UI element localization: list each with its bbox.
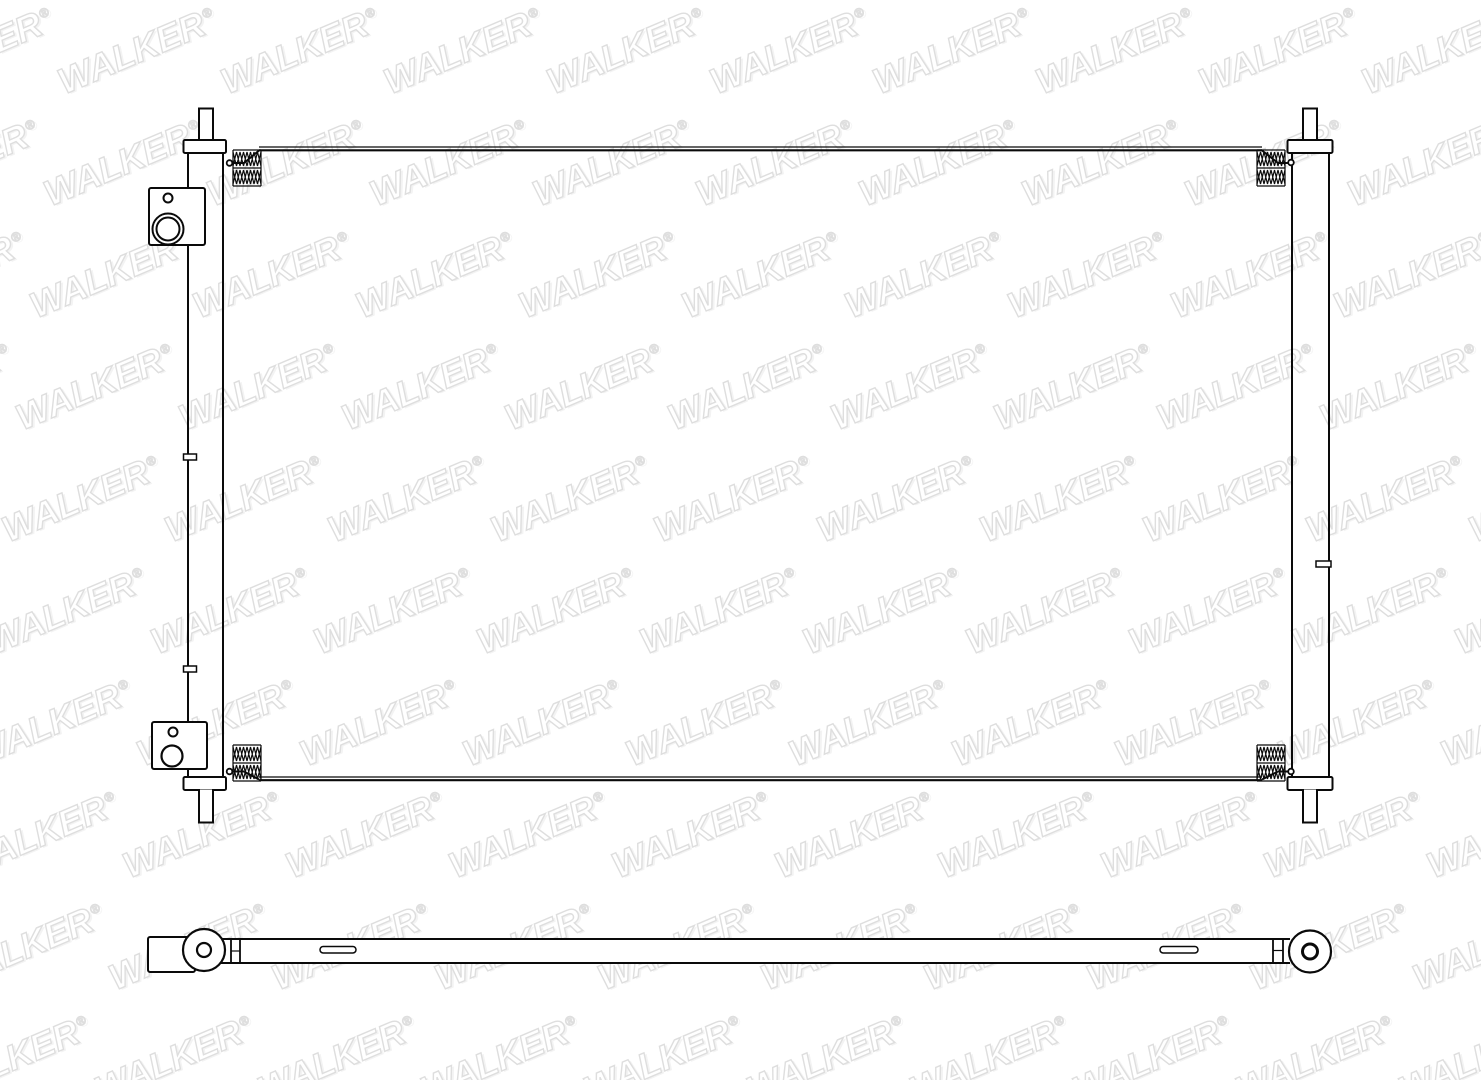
bottom-bar-slot-left [320,947,356,954]
core-bottom-right-hook [1288,769,1294,775]
right-tank-body [1292,153,1329,777]
fin-detail-top-right [1257,150,1285,186]
pin-flange-bottom-right [1288,777,1333,790]
front-view [149,109,1333,823]
core-outline [227,147,1294,780]
core-top-left-hook [227,160,233,166]
left-tank-bracket-tab-lower [184,666,197,672]
pin-flange-top-right [1288,140,1333,153]
mounting-pin-bottom-left [199,790,213,823]
left-side-tank [149,109,226,823]
technical-drawing [0,0,1481,1080]
bottom-bar-fill [195,939,1290,963]
fin-details [233,150,1285,781]
core-top-right-hook [1288,160,1294,166]
catalog-part-image: WALKER®WALKER®WALKER®WALKER®WALKER®WALKE… [0,0,1481,1080]
bottom-view-right-boss [1289,931,1331,973]
left-tank-bracket-tab-upper [184,454,197,460]
mounting-pin-top-left [199,109,213,141]
right-side-tank [1288,109,1333,823]
bottom-view-left-boss [183,929,225,971]
fin-detail-bottom-left [233,745,261,781]
bottom-bar-slot-right [1160,947,1198,954]
mounting-pin-top-right [1303,109,1317,141]
left-tank-body [188,153,223,777]
fin-detail-top-left [233,150,261,186]
bottom-view [148,929,1331,973]
pin-flange-bottom-left [184,777,227,790]
right-tank-bracket-tab [1316,561,1331,567]
mounting-pin-bottom-right [1303,790,1317,823]
core-bottom-left-hook [227,769,233,775]
pin-flange-top-left [184,140,227,153]
